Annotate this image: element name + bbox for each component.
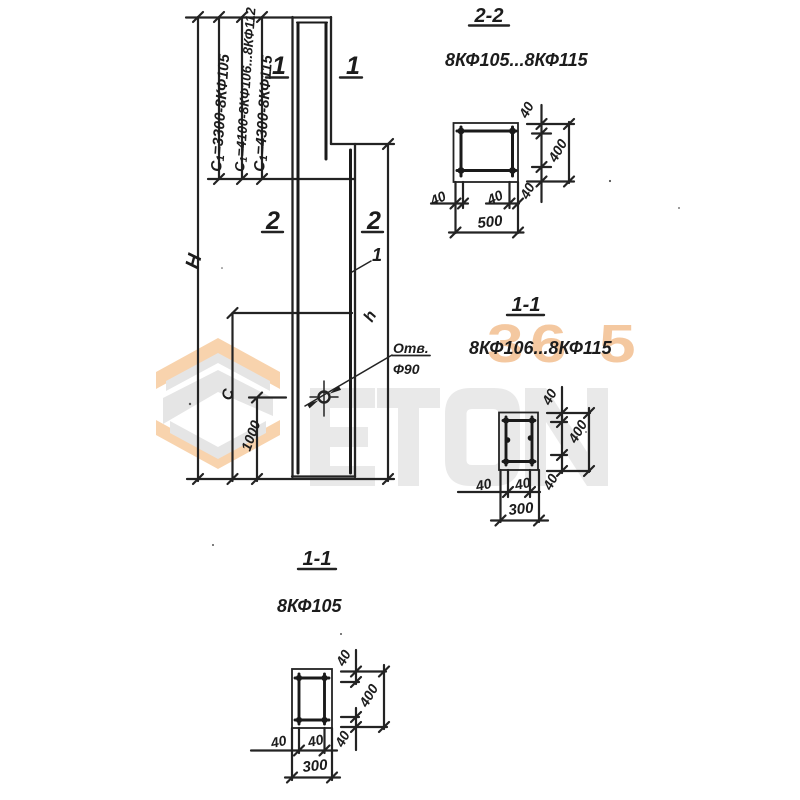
svg-text:40: 40 — [305, 731, 325, 750]
svg-text:2: 2 — [366, 207, 381, 235]
svg-text:300: 300 — [302, 756, 329, 776]
svg-text:Ф90: Ф90 — [393, 361, 420, 377]
svg-text:500: 500 — [477, 212, 504, 232]
svg-text:1: 1 — [272, 52, 286, 80]
svg-text:1: 1 — [372, 245, 382, 265]
svg-text:1-1: 1-1 — [303, 548, 332, 570]
svg-text:40: 40 — [268, 732, 288, 751]
svg-text:40: 40 — [512, 474, 532, 493]
svg-text:8КФ105: 8КФ105 — [277, 596, 342, 616]
svg-text:1: 1 — [346, 52, 360, 80]
svg-text:300: 300 — [508, 499, 535, 519]
svg-text:8КФ105...8КФ115: 8КФ105...8КФ115 — [445, 50, 589, 70]
svg-text:2-2: 2-2 — [474, 5, 504, 27]
svg-text:2: 2 — [265, 207, 280, 235]
svg-text:40: 40 — [473, 475, 493, 494]
svg-text:Отв.: Отв. — [393, 340, 429, 356]
svg-text:1-1: 1-1 — [512, 294, 541, 316]
svg-text:8КФ106...8КФ115: 8КФ106...8КФ115 — [469, 338, 613, 358]
